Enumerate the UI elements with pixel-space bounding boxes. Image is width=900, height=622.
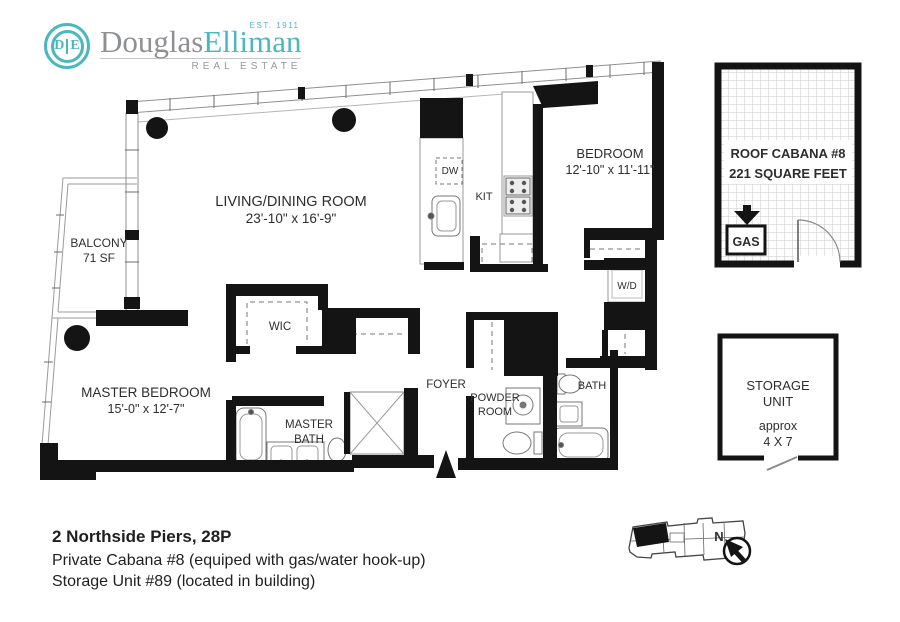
bedroom-label: BEDROOM [576,146,643,161]
kitchen-sink-icon [428,196,460,236]
roof-cabana: ROOF CABANA #8 221 SQUARE FEET GAS [718,66,858,270]
master-bedroom-dims: 15'-0" x 12'-7" [108,402,185,416]
storage-label-4: 4 X 7 [763,435,792,449]
listing-storage-note: Storage Unit #89 (located in building) [52,571,426,592]
column-icon [146,117,168,139]
foyer-label: FOYER [426,379,466,391]
compass-north-label: N [714,529,723,544]
entry-arrow-icon [436,450,456,478]
master-bath-label-2: BATH [294,434,324,446]
storage-label-1: STORAGE [746,378,810,393]
column-icon [64,325,90,351]
balcony-label: BALCONY [70,236,127,250]
cabana-label-2: 221 SQUARE FEET [729,166,847,181]
storage-label-3: approx [759,419,798,433]
shower-icon [350,392,404,454]
kitchen-cabinet [500,234,533,262]
balcony-dims: 71 SF [83,251,115,265]
listing-title: 2 Northside Piers, 28P [52,527,426,547]
wd-label: W/D [617,281,636,292]
stove-icon [504,176,532,216]
dishwasher-label: DW [442,166,459,177]
living-room-dims: 23'-10" x 16'-9" [246,211,337,226]
listing-info: 2 Northside Piers, 28P Private Cabana #8… [52,527,426,592]
cabana-label-1: ROOF CABANA #8 [730,146,845,161]
storage-unit: STORAGE UNIT approx 4 X 7 [720,336,836,470]
powder-room-label-2: ROOM [478,406,512,418]
master-bedroom-label: MASTER BEDROOM [81,385,211,400]
kitchen-label: KIT [475,191,492,203]
master-tub-icon [236,408,266,466]
cabana-door-opening [794,256,840,270]
bath-label: BATH [578,380,607,392]
listing-cabana-note: Private Cabana #8 (equiped with gas/wate… [52,550,426,571]
column-icon [332,108,356,132]
bedroom-dims: 12'-10" x 11'-11" [566,163,655,177]
bath-sink-icon [556,402,582,426]
living-room-label: LIVING/DINING ROOM [215,194,366,210]
master-bath-label-1: MASTER [285,419,333,431]
powder-room-label-1: POWDER [470,392,520,404]
wic-label: WIC [269,321,291,333]
bath-tub-icon [554,428,608,462]
storage-label-2: UNIT [763,394,793,409]
gas-label: GAS [732,235,759,249]
powder-toilet-icon [503,432,542,454]
